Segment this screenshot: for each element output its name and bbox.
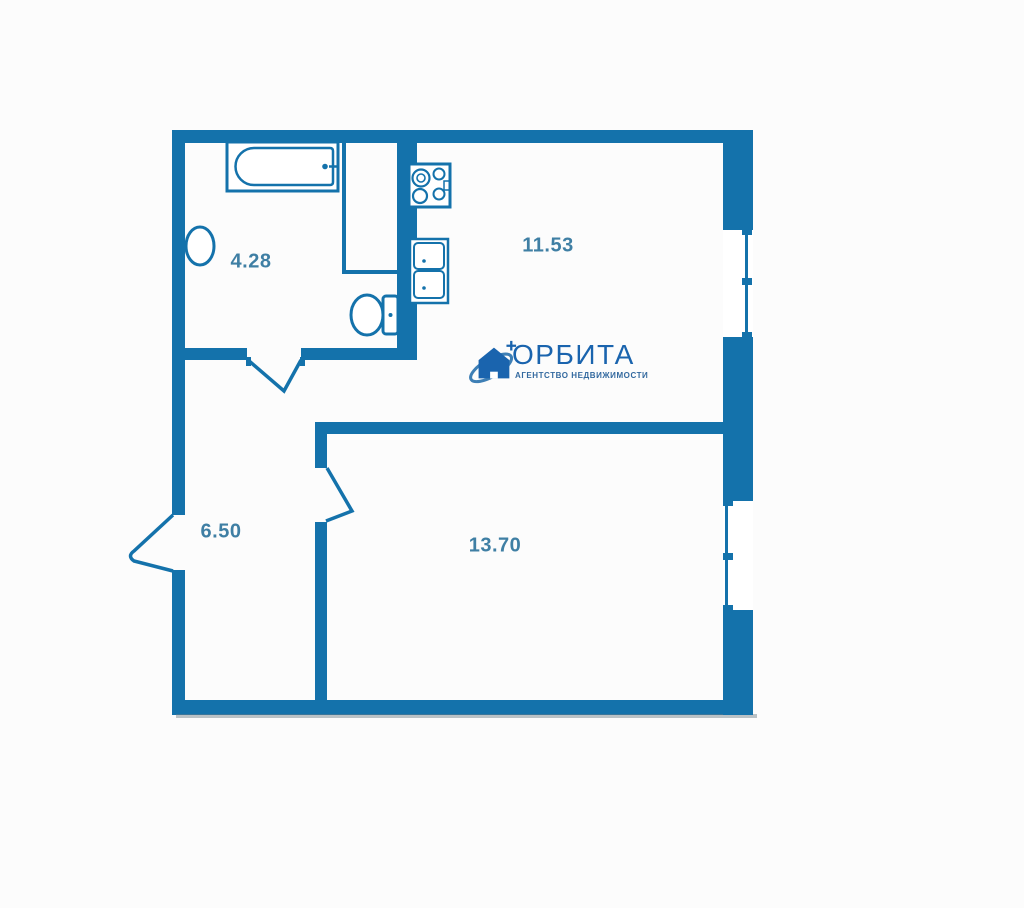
orbit-house-icon xyxy=(468,337,518,391)
bedroom-door-swing xyxy=(326,468,352,521)
logo-tagline-text: АГЕНТСТВО НЕДВИЖИМОСТИ xyxy=(515,371,648,380)
double-sink-drain-lower xyxy=(422,286,426,290)
wall-bedroom-left-upper xyxy=(315,422,327,468)
window-lower xyxy=(723,501,753,610)
wall-bathroom-bottom-left xyxy=(185,348,247,360)
floor-plan: 4.28 11.53 6.50 13.70 ОРБИТА АГЕНТСТВО Н… xyxy=(0,0,1024,908)
floor-plan-drawing xyxy=(0,0,1024,908)
wall-bottom xyxy=(172,700,753,715)
duct-niche-line-vertical xyxy=(342,143,346,274)
room-label-hallway: 6.50 xyxy=(201,521,242,544)
cooktop-icon xyxy=(409,164,450,207)
wall-left-upper xyxy=(172,130,185,515)
window-lower-tick-bottom xyxy=(723,605,733,610)
bathtub-basin xyxy=(236,148,334,185)
house-door xyxy=(490,372,498,379)
bathroom-door-swing xyxy=(248,360,301,391)
agency-logo: ОРБИТА АГЕНТСТВО НЕДВИЖИМОСТИ xyxy=(468,335,668,393)
wall-bottom-shadow xyxy=(176,714,757,718)
wall-left-lower xyxy=(172,570,185,715)
window-upper-tick-bottom xyxy=(742,332,752,337)
toilet-bowl xyxy=(351,295,383,335)
bathtub-icon xyxy=(227,142,338,191)
double-sink-basin-lower xyxy=(414,271,444,298)
toilet-icon xyxy=(351,295,398,335)
window-upper-tick-middle xyxy=(742,278,752,285)
window-upper-tick-top xyxy=(742,230,752,235)
logo-brand-text: ОРБИТА xyxy=(512,339,635,371)
duct-niche-line-horizontal xyxy=(342,270,397,274)
wash-basin-icon xyxy=(183,227,214,265)
entrance-door-swing xyxy=(131,515,174,571)
window-lower-tick-middle xyxy=(723,553,733,560)
double-sink-basin-upper xyxy=(414,243,444,269)
room-label-kitchen-living: 11.53 xyxy=(522,235,573,258)
wall-bedroom-top xyxy=(315,422,723,434)
double-sink-icon xyxy=(410,239,448,303)
wash-basin-bowl xyxy=(186,227,214,265)
wall-bedroom-left-lower xyxy=(315,522,327,702)
bathtub-drain xyxy=(322,164,328,170)
room-label-bedroom: 13.70 xyxy=(469,535,522,558)
window-lower-tick-top xyxy=(723,501,733,506)
wall-bathroom-bottom-right xyxy=(301,348,417,360)
room-label-bathroom: 4.28 xyxy=(231,251,272,274)
window-upper xyxy=(723,230,753,337)
double-sink-drain-upper xyxy=(422,259,426,263)
toilet-tank-button xyxy=(389,313,393,317)
wall-right xyxy=(723,130,753,715)
